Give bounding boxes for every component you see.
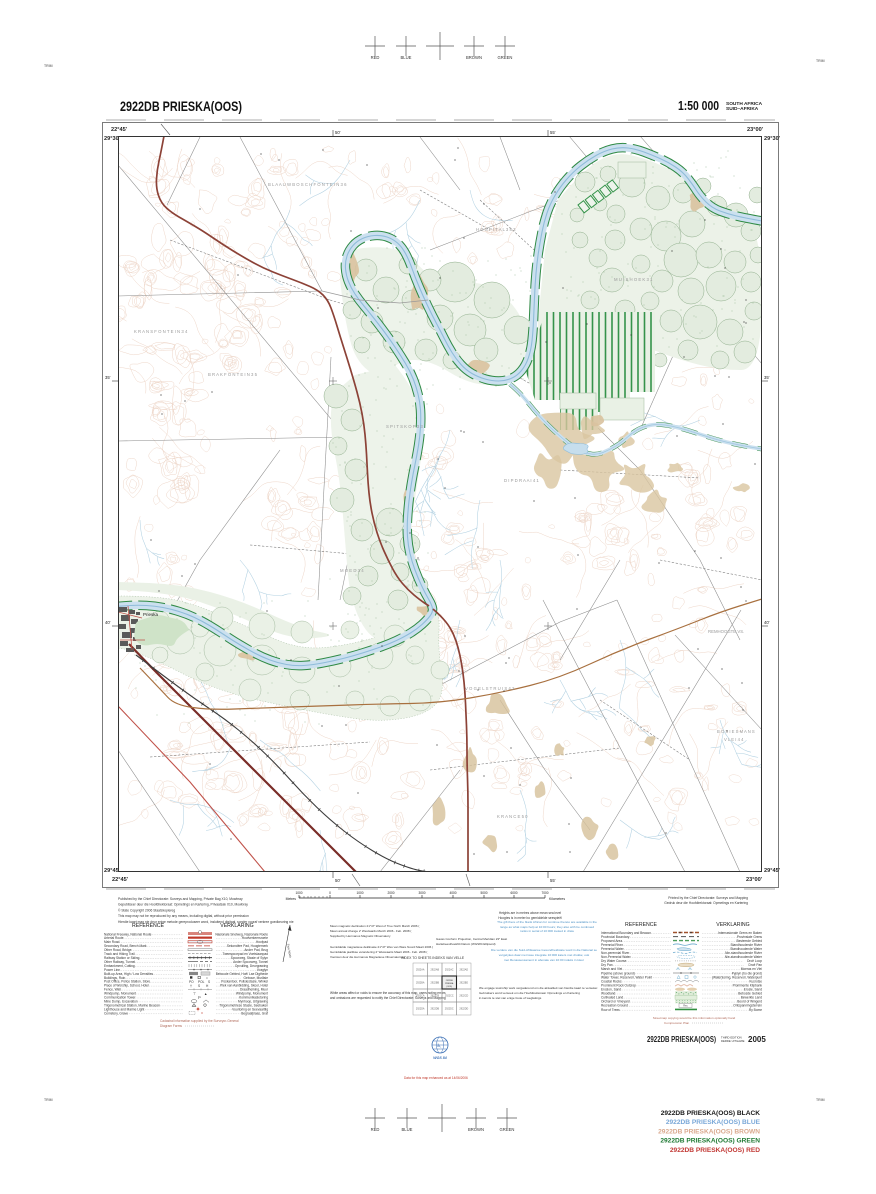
svg-text:V O G E L S T R U I S 4 2: V O G E L S T R U I S 4 2: [465, 686, 515, 691]
svg-text:40': 40': [105, 620, 111, 625]
svg-text:in kennis te stel van enige fo: in kennis te stel van enige foute of weg…: [479, 996, 542, 1000]
svg-text:REMHOOGTE VS.: REMHOOGTE VS.: [708, 629, 744, 634]
svg-text:We engage township work vergad: We engage township work vergaderend om d…: [479, 986, 598, 990]
svg-text:2922DB PRIESKA(OOS) BROWN: 2922DB PRIESKA(OOS) BROWN: [658, 1128, 760, 1135]
svg-text:INDEX TO SHEETS INDEKS VAN V: INDEX TO SHEETS INDEKS VAN VELLE: [401, 956, 465, 960]
svg-text:Cadastral information supplied: Cadastral information supplied by the Su…: [160, 1019, 239, 1023]
svg-text:S P I T S K O P 3 3: S P I T S K O P 3 3: [386, 424, 423, 429]
svg-text:Kilometres: Kilometres: [549, 897, 565, 901]
svg-text:VERKLARING: VERKLARING: [220, 923, 253, 929]
svg-text:Supplied by Hermanus Magnetic: Supplied by Hermanus Magnetic Observator…: [330, 934, 391, 938]
svg-text:V L E I 4 4: V L E I 4 4: [724, 737, 744, 742]
svg-text:REFERENCE: REFERENCE: [625, 922, 658, 928]
svg-text:Metres: Metres: [286, 897, 297, 901]
svg-text:2922DA: 2922DA: [416, 1008, 425, 1011]
svg-text:GREEN: GREEN: [498, 55, 513, 60]
svg-text:29°45': 29°45': [764, 868, 781, 874]
svg-text:Prieska: Prieska: [143, 612, 159, 617]
svg-text:6000: 6000: [510, 891, 517, 895]
svg-text:B O S I E S M A N S: B O S I E S M A N S: [717, 729, 755, 734]
svg-text:PRIESKA: PRIESKA: [445, 982, 454, 985]
svg-text:Printed by the Chief Directora: Printed by the Chief Directorate: Survey…: [668, 896, 748, 900]
svg-text:2922BA: 2922BA: [416, 982, 425, 985]
svg-text:1:50 000: 1:50 000: [678, 98, 719, 113]
svg-text:2922DB PRIESKA(OOS) GREEN: 2922DB PRIESKA(OOS) GREEN: [660, 1138, 760, 1145]
svg-text:Gedruk deur die Hoofdirektoraa: Gedruk deur die Hoofdirektoraat: Opmetin…: [664, 901, 748, 905]
svg-text:BLUE: BLUE: [401, 55, 412, 60]
svg-text:2922DD: 2922DD: [459, 1008, 468, 1011]
svg-text:2922DB PRIESKA(OOS) BLUE: 2922DB PRIESKA(OOS) BLUE: [666, 1119, 761, 1126]
svg-text:2922BB: 2922BB: [431, 982, 440, 985]
svg-text:23°00': 23°00': [746, 877, 763, 883]
svg-text:K R A N C E 5 0: K R A N C E 5 0: [497, 814, 528, 819]
svg-text:ranks in serial of 10:000 look: ranks in serial of 10:000 looked in draw: [520, 929, 574, 933]
svg-text:29°30': 29°30': [764, 136, 781, 142]
svg-text:Die verdere van die Suid-Afrik: Die verdere van die Suid-Afrikaanse Geso…: [491, 948, 597, 952]
svg-text:DERDE UITGAWE: DERDE UITGAWE: [721, 1039, 745, 1043]
svg-text:Streetmap copying would be thi: Streetmap copying would be this informat…: [653, 1016, 736, 1020]
svg-text:met Renassessament in abonale: met Renassessament in abonale van 10:00 …: [504, 958, 584, 962]
svg-text:GREEN: GREEN: [500, 1127, 515, 1132]
svg-text:2922DB PRIESKA(OOS) RED: 2922DB PRIESKA(OOS) RED: [670, 1147, 760, 1154]
svg-text:S: S: [198, 984, 200, 988]
svg-text:†: †: [190, 984, 192, 988]
svg-text:K R A N S F O N T E I N 3 4: K R A N S F O N T E I N 3 4: [134, 329, 188, 334]
svg-text:RED: RED: [371, 1127, 380, 1132]
svg-text:Data for this map enhanced as: Data for this map enhanced as at 14/06/2…: [404, 1076, 468, 1080]
svg-text:2000: 2000: [387, 891, 394, 895]
svg-text:BROWN: BROWN: [468, 1127, 484, 1132]
svg-text:2922CC: 2922CC: [445, 995, 454, 998]
svg-text:H O S P I T A L 3 8 3: H O S P I T A L 3 8 3: [476, 227, 516, 232]
svg-text:BLUE: BLUE: [402, 1127, 413, 1132]
svg-text:0: 0: [329, 891, 331, 895]
svg-text:2005: 2005: [748, 1035, 766, 1044]
svg-text:Gebruikers word versoek om die: Gebruikers word versoek om die Hoofdirek…: [479, 991, 580, 995]
svg-text:VERKLARING: VERKLARING: [716, 922, 749, 928]
svg-text:2922DB: 2922DB: [430, 1008, 439, 1011]
svg-text:Heights are in metres above me: Heights are in metres above mean sea lev…: [499, 911, 561, 915]
svg-text:2922AD: 2922AD: [459, 969, 468, 972]
svg-text:2922DB PRIESKA(OOS): 2922DB PRIESKA(OOS): [120, 98, 242, 114]
svg-text:TRIM: TRIM: [816, 59, 825, 63]
svg-text:TRIM: TRIM: [816, 1098, 825, 1102]
svg-text:55': 55': [550, 130, 556, 135]
svg-text:Gemiddelde magnetiese deklinas: Gemiddelde magnetiese deklinasie 21°47' …: [330, 945, 433, 949]
svg-text:2922AA: 2922AA: [416, 969, 425, 972]
svg-text:Begraafplaas, Graf: Begraafplaas, Graf: [241, 1011, 268, 1015]
svg-text:5000: 5000: [480, 891, 487, 895]
svg-text:2922AC: 2922AC: [445, 969, 454, 972]
svg-text:S: S: [208, 980, 210, 984]
svg-text:Compression Plan: Compression Plan: [664, 1021, 690, 1025]
svg-text:White areas affect or voids to: White areas affect or voids to ensure th…: [330, 991, 446, 995]
svg-text:REFERENCE: REFERENCE: [132, 923, 165, 929]
svg-text:M U I S H O E K 3 1: M U I S H O E K 3 1: [614, 277, 653, 282]
svg-text:Diagram Farms: Diagram Farms: [160, 1024, 182, 1028]
svg-text:vergelykes daar met twee integ: vergelykes daar met twee integrale 10:00…: [499, 953, 590, 957]
svg-text:(OOS): (OOS): [446, 986, 452, 988]
svg-text:D I P D R A A I 4 1: D I P D R A A I 4 1: [504, 478, 539, 483]
svg-text:Ƥ: Ƥ: [198, 996, 201, 1000]
svg-text:Cemetery, Grave: Cemetery, Grave: [104, 1011, 128, 1015]
svg-text:2922CA: 2922CA: [416, 995, 425, 998]
svg-text:7000: 7000: [541, 891, 548, 895]
svg-text:BROWN: BROWN: [466, 55, 482, 60]
svg-text:23°00': 23°00': [747, 127, 764, 133]
svg-text:Voorsien deur die Hermanus Mag: Voorsien deur die Hermanus Magnetiese Ob…: [330, 955, 405, 959]
svg-text:▲: ▲: [204, 992, 207, 996]
svg-text:RED: RED: [371, 55, 380, 60]
svg-text:Row of Trees: Row of Trees: [601, 1008, 620, 1012]
svg-text:This map may not be reproduced: This map may not be reproduced by any me…: [118, 914, 249, 918]
svg-text:50': 50': [335, 130, 341, 135]
svg-text:© State Copyright 2006 Staat: © State Copyright 2006 Staatskopiereg: [118, 908, 175, 912]
svg-text:1000: 1000: [356, 891, 363, 895]
svg-text:35': 35': [105, 375, 111, 380]
svg-text:2922DB PRIESKA(OOS) BLACK: 2922DB PRIESKA(OOS) BLACK: [661, 1110, 761, 1117]
svg-text:1000: 1000: [295, 891, 302, 895]
svg-text:Gauss Conform Projection, Cent: Gauss Conform Projection, Central Meridi…: [436, 937, 507, 941]
svg-text:TRIM: TRIM: [44, 64, 53, 68]
svg-text:WGS 84: WGS 84: [433, 1056, 447, 1060]
svg-text:Mean annual change 2' Westward: Mean annual change 2' Westwards March 20…: [330, 929, 411, 933]
svg-text:The gift there of the blank Af: The gift there of the blank African for …: [497, 920, 597, 924]
svg-text:55': 55': [550, 878, 556, 883]
svg-text:2922CB: 2922CB: [430, 995, 439, 998]
svg-text:2922CD: 2922CD: [459, 995, 468, 998]
svg-text:3000: 3000: [418, 891, 425, 895]
svg-text:Gemiddelde jaarlikse veranderi: Gemiddelde jaarlikse verandering 2' Wesw…: [330, 950, 427, 954]
svg-text:M O E D 3 4: M O E D 3 4: [340, 568, 364, 573]
svg-text:2922DC: 2922DC: [445, 1008, 454, 1011]
svg-text:Rec: Rec: [683, 1004, 688, 1008]
svg-text:B R A K F O N T E I N 3 5: B R A K F O N T E I N 3 5: [208, 372, 258, 377]
svg-text:2922DB PRIESKA(OOS): 2922DB PRIESKA(OOS): [647, 1035, 716, 1044]
svg-text:2922AB: 2922AB: [431, 969, 440, 972]
svg-text:40': 40': [764, 620, 770, 625]
svg-text:Hartebeesthoek94 Datum (WGS84: Hartebeesthoek94 Datum (WGS84 Ellipsoid): [436, 942, 496, 946]
svg-text:Published by the Chief Directo: Published by the Chief Directorate: Surv…: [118, 897, 243, 901]
svg-text:50': 50': [335, 878, 341, 883]
svg-text:TRIM: TRIM: [44, 1098, 53, 1102]
svg-text:2922DB: 2922DB: [446, 980, 454, 982]
svg-text:Gepubliseer deur die Hoofdirek: Gepubliseer deur die Hoofdirektoraat: Op…: [118, 903, 248, 907]
svg-text:B L A A U W B O S C H F O N T: B L A A U W B O S C H F O N T E I N 3 6: [268, 182, 347, 187]
svg-text:2922BD: 2922BD: [459, 982, 468, 985]
svg-text:4000: 4000: [449, 891, 456, 895]
svg-text:and omissions are requested to: and omissions are requested to notify th…: [330, 996, 446, 1000]
svg-text:Ry Bome: Ry Bome: [749, 1008, 762, 1012]
svg-text:22°45': 22°45': [112, 877, 129, 883]
svg-text:Mean magnetic declination 21°4: Mean magnetic declination 21°47' West of…: [330, 924, 419, 928]
svg-text:35': 35': [764, 375, 770, 380]
svg-text:SUID–AFRIKA: SUID–AFRIKA: [726, 106, 759, 112]
svg-text:22°45': 22°45': [111, 127, 128, 133]
